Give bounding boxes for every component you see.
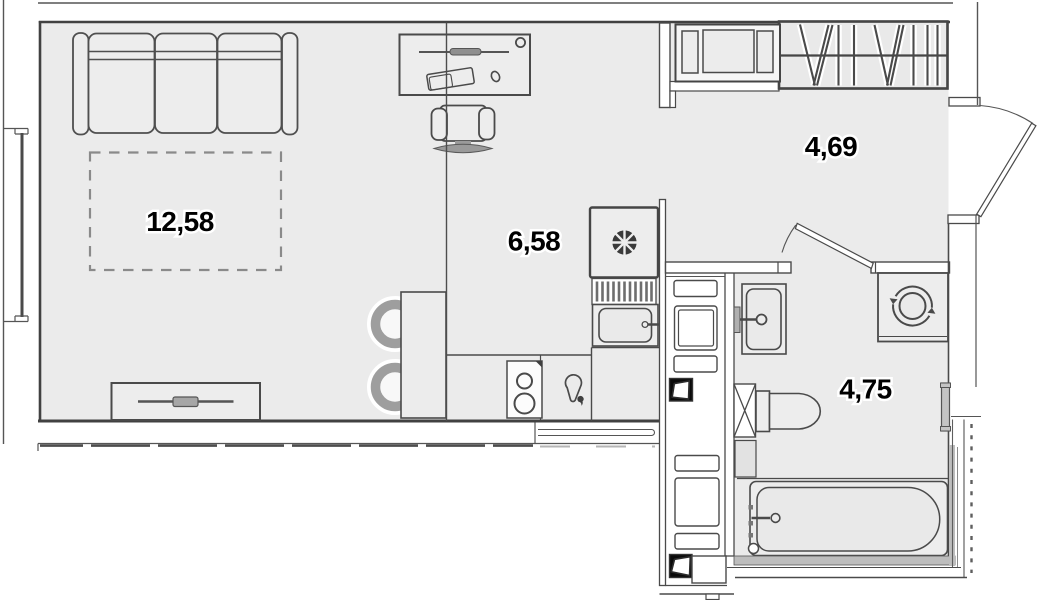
- svg-text:12,58: 12,58: [146, 206, 214, 237]
- svg-text:6,58: 6,58: [508, 226, 561, 257]
- svg-text:4,69: 4,69: [805, 131, 858, 162]
- svg-text:4,75: 4,75: [839, 374, 892, 405]
